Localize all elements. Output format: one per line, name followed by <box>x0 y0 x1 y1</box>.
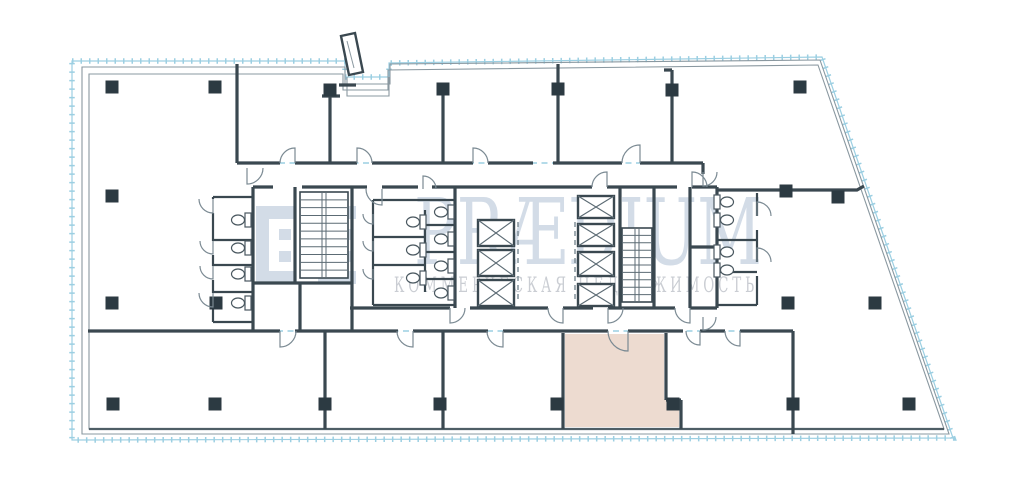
toilet-fixture <box>407 215 427 229</box>
door-swing-icon <box>487 331 503 347</box>
floor-plan-drawing: PRÆDIUM КОММЕРЧЕСКАЯ НЕДВИЖИМОСТЬ <box>0 0 1024 494</box>
door-swing-icon <box>280 148 295 163</box>
column <box>666 84 679 97</box>
toilet-fixture <box>407 243 427 257</box>
column <box>832 191 845 204</box>
column <box>551 398 564 411</box>
door-swing-icon <box>450 308 465 323</box>
door-swing-icon <box>725 331 740 346</box>
column <box>787 398 800 411</box>
door-swing-icon <box>703 317 716 330</box>
door-swing-icon <box>200 266 213 279</box>
toilet-fixture <box>232 213 252 227</box>
door-swing-icon <box>397 331 413 347</box>
column <box>106 81 119 94</box>
floor-plan-canvas: PRÆDIUM КОММЕРЧЕСКАЯ НЕДВИЖИМОСТЬ <box>0 0 1024 494</box>
column <box>780 185 793 198</box>
column <box>437 83 450 96</box>
door-swing-icon <box>622 145 640 163</box>
door-swing-icon <box>363 214 373 224</box>
door-swing-icon <box>200 241 213 254</box>
door-swing-icon <box>357 148 372 163</box>
toilet-fixture <box>232 241 252 255</box>
column <box>209 81 222 94</box>
door-swing-icon <box>548 308 563 323</box>
column <box>210 297 223 310</box>
door-swing-icon <box>473 148 488 163</box>
toilet-fixture <box>232 296 252 310</box>
door-swing-icon <box>608 308 623 323</box>
door-swing-icon <box>366 189 382 205</box>
door-swing-icon <box>686 331 700 345</box>
column <box>552 83 565 96</box>
door-swing-icon <box>247 168 263 184</box>
highlighted-unit[interactable] <box>565 334 679 427</box>
door-swing-icon <box>675 308 690 323</box>
staircase <box>300 192 348 278</box>
toilet-fixture <box>232 267 252 281</box>
column <box>106 297 119 310</box>
column <box>782 297 795 310</box>
column <box>107 398 120 411</box>
column <box>667 398 680 411</box>
door-swing-icon <box>363 241 373 251</box>
door-swing-icon <box>280 331 296 347</box>
column <box>434 398 447 411</box>
door-swing-icon <box>363 269 373 279</box>
column <box>324 84 337 97</box>
door-swing-icon <box>199 199 213 213</box>
column <box>794 81 807 94</box>
column <box>903 398 916 411</box>
column <box>106 190 119 203</box>
column <box>869 297 882 310</box>
column <box>209 398 222 411</box>
column <box>319 398 332 411</box>
